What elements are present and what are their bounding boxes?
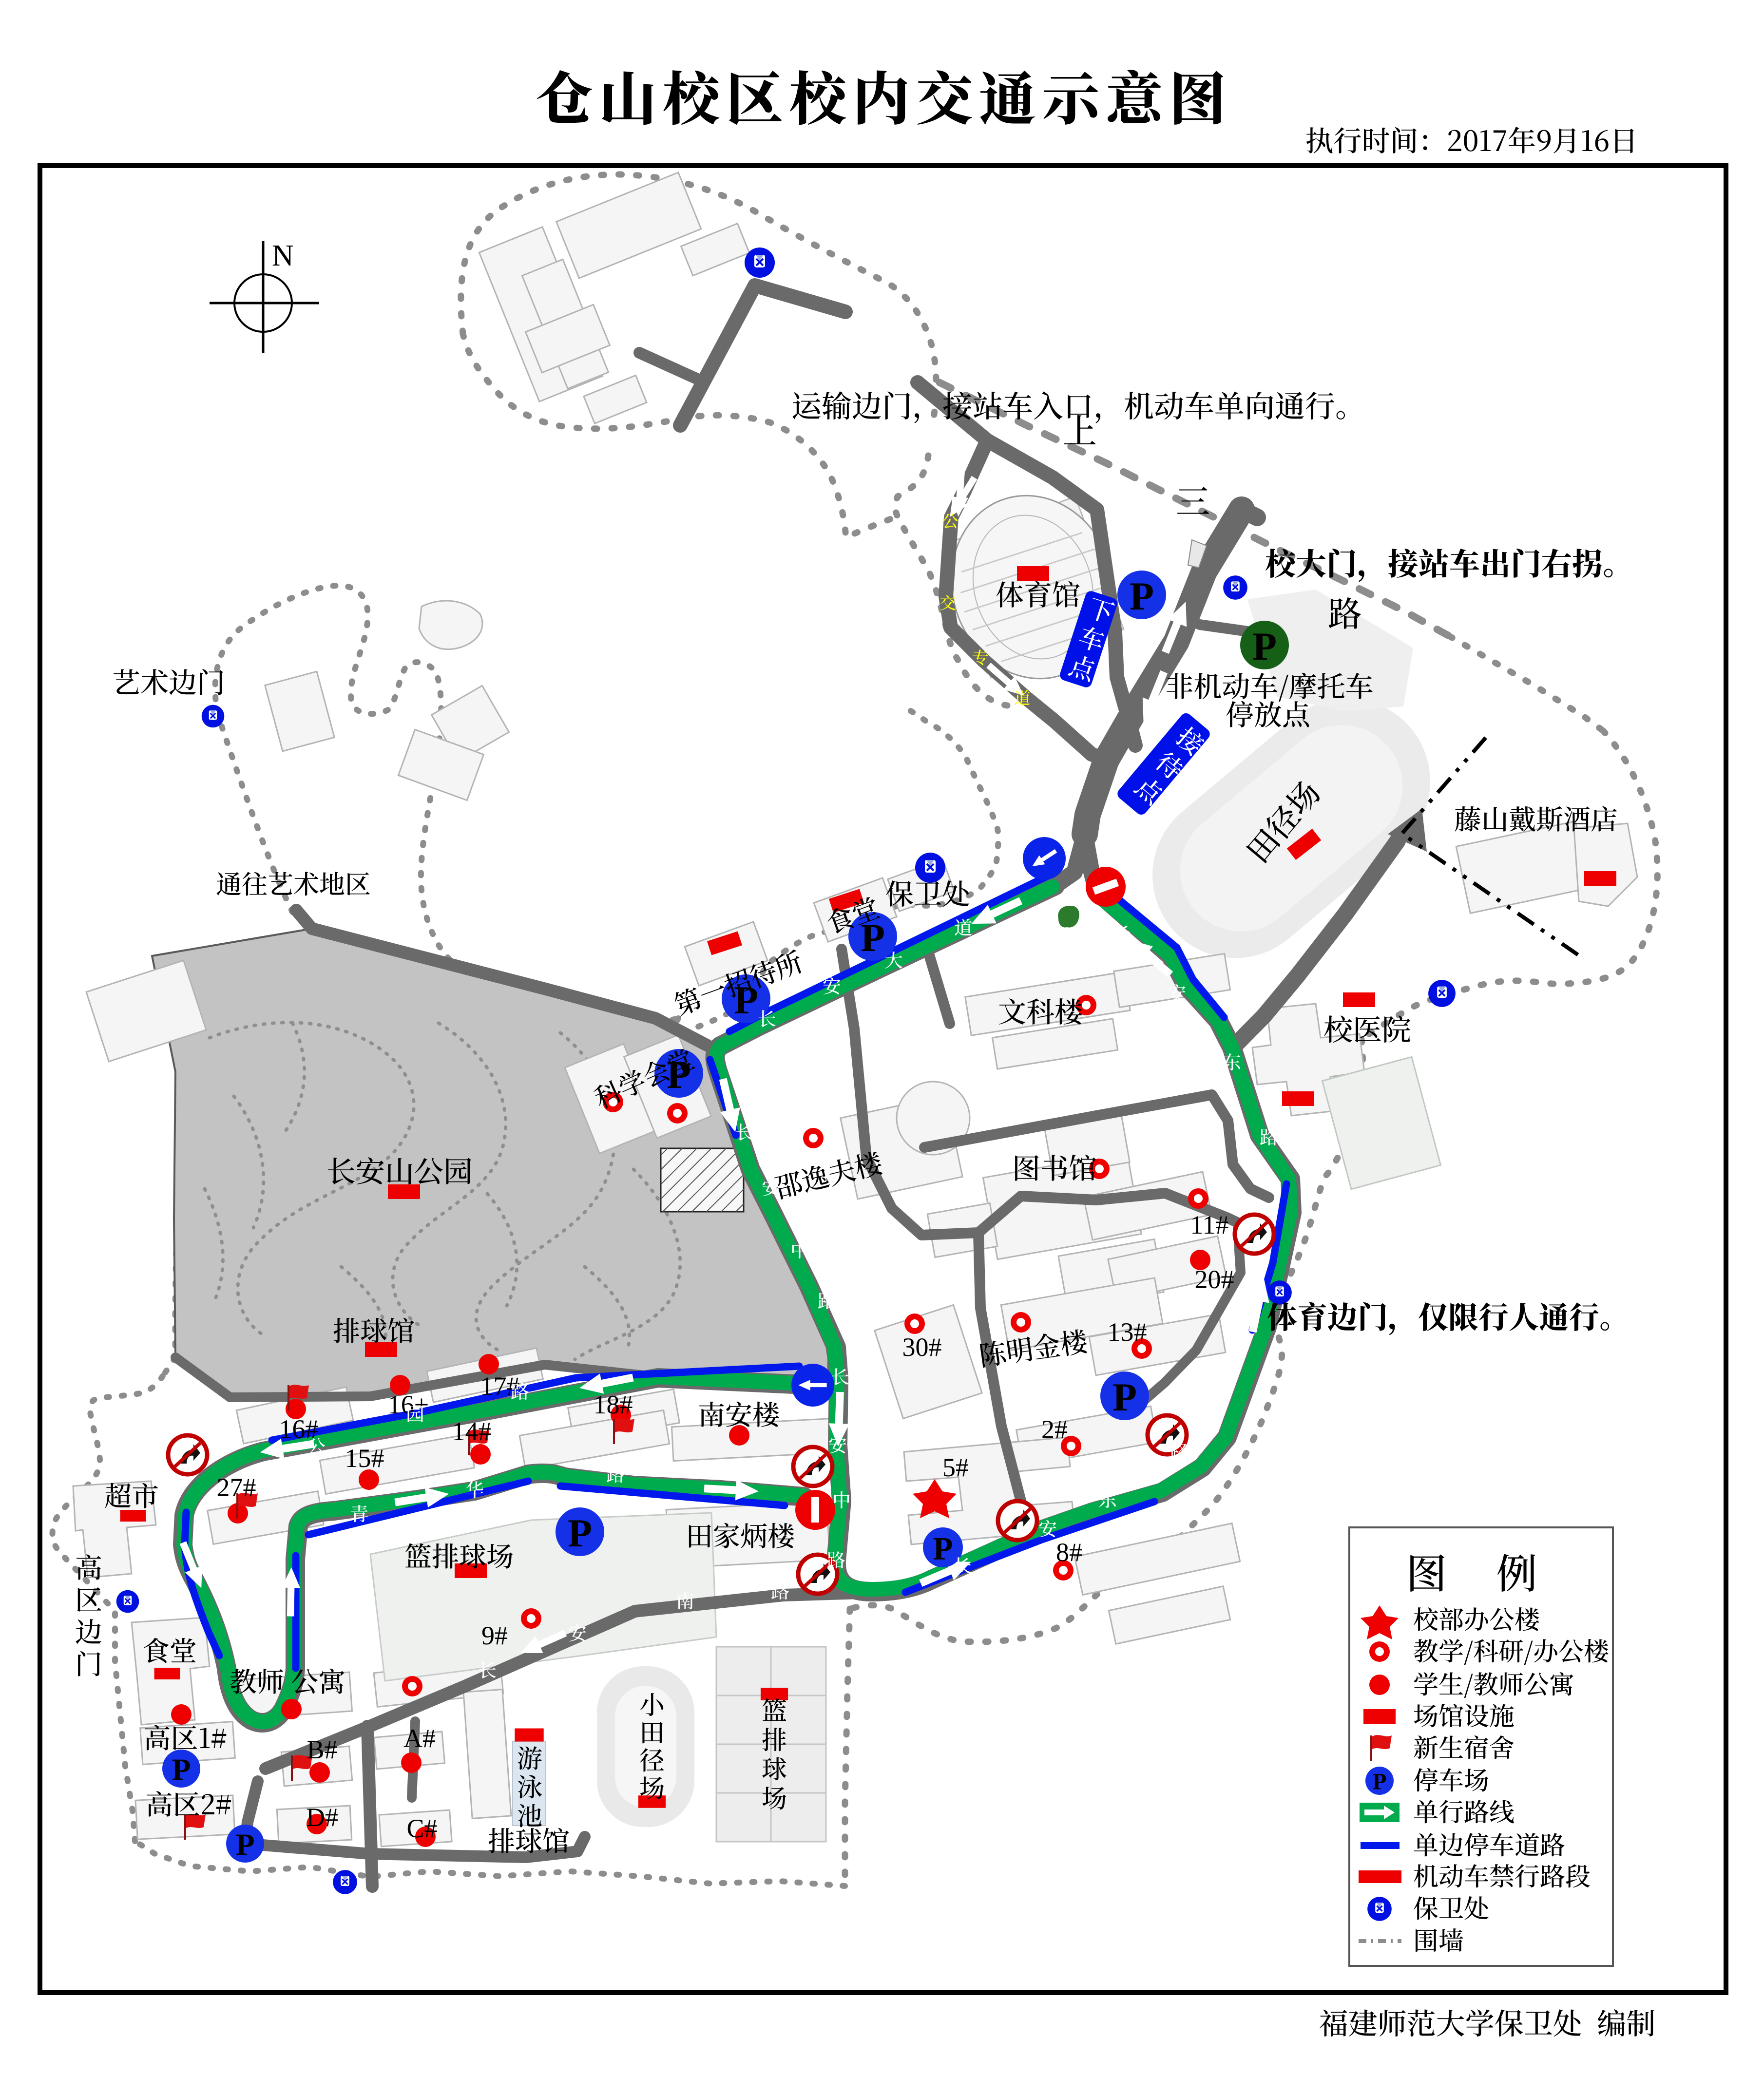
svg-text:13#: 13# <box>1108 1317 1147 1347</box>
svg-text:17#: 17# <box>480 1371 520 1401</box>
svg-text:27#: 27# <box>217 1473 256 1502</box>
svg-text:5#: 5# <box>942 1453 969 1482</box>
svg-text:8#: 8# <box>1056 1538 1082 1567</box>
svg-text:11#: 11# <box>1190 1210 1229 1239</box>
svg-text:B#: B# <box>307 1735 337 1764</box>
svg-text:D#: D# <box>306 1803 338 1832</box>
svg-text:P: P <box>1252 624 1277 668</box>
svg-text:2#: 2# <box>1041 1415 1068 1444</box>
svg-text:A#: A# <box>403 1724 436 1753</box>
svg-text:C#: C# <box>406 1814 437 1843</box>
svg-text:20#: 20# <box>1195 1265 1234 1294</box>
svg-text:9#: 9# <box>481 1621 508 1650</box>
svg-text:18#: 18# <box>594 1390 633 1419</box>
svg-text:16#: 16# <box>279 1414 319 1444</box>
svg-text:30#: 30# <box>902 1333 942 1362</box>
svg-text:14#: 14# <box>452 1417 492 1446</box>
svg-text:N: N <box>272 239 294 272</box>
svg-text:15#: 15# <box>345 1444 384 1473</box>
